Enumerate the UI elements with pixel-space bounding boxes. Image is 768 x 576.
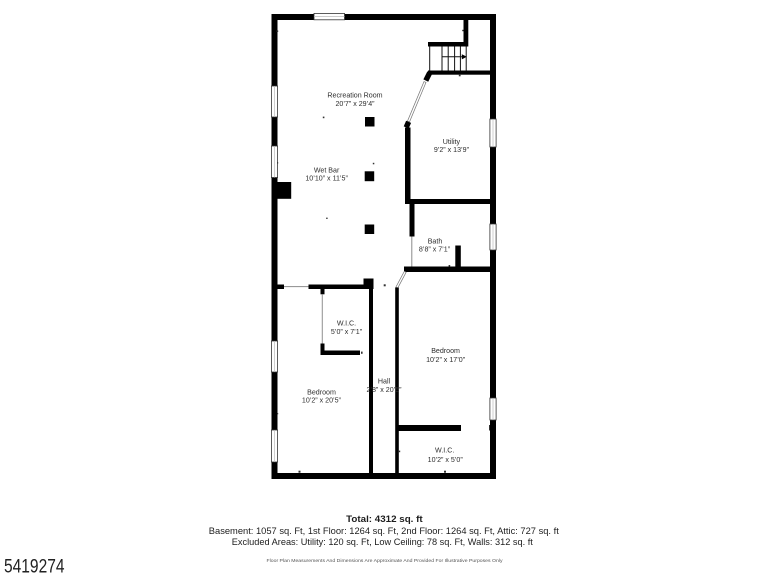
svg-text:5’0” x 7’1”: 5’0” x 7’1” bbox=[331, 328, 363, 336]
svg-text:Basement: 1057 sq. Ft, 1st Flo: Basement: 1057 sq. Ft, 1st Floor: 1264 s… bbox=[209, 525, 559, 536]
svg-text:20’7” x 29’4”: 20’7” x 29’4” bbox=[335, 100, 375, 108]
svg-text:Bath: Bath bbox=[428, 237, 443, 245]
svg-text:Excluded Areas: Utility: 120 s: Excluded Areas: Utility: 120 sq. Ft, Low… bbox=[232, 536, 533, 547]
svg-text:2’8” x 20’5”: 2’8” x 20’5” bbox=[366, 386, 402, 394]
svg-text:Recreation Room: Recreation Room bbox=[327, 92, 382, 100]
svg-text:Floor Plan Measurements And Di: Floor Plan Measurements And Dimensions A… bbox=[267, 558, 504, 564]
svg-text:8’8” x 7’1”: 8’8” x 7’1” bbox=[419, 246, 451, 254]
svg-text:10’2” x 17’0”: 10’2” x 17’0” bbox=[426, 356, 466, 364]
svg-text:10’2” x 5’0”: 10’2” x 5’0” bbox=[428, 456, 464, 464]
svg-text:Bedroom: Bedroom bbox=[431, 347, 460, 355]
svg-text:Utility: Utility bbox=[443, 138, 461, 146]
svg-text:W.I.C.: W.I.C. bbox=[435, 447, 454, 455]
svg-text:Bedroom: Bedroom bbox=[307, 388, 336, 396]
svg-text:Wet Bar: Wet Bar bbox=[314, 167, 340, 175]
svg-text:5419274: 5419274 bbox=[4, 556, 65, 576]
svg-text:Hall: Hall bbox=[378, 378, 391, 386]
svg-text:10’10” x 11’5”: 10’10” x 11’5” bbox=[305, 175, 348, 183]
svg-text:W.I.C.: W.I.C. bbox=[337, 320, 356, 328]
svg-text:Total: 4312 sq. ft: Total: 4312 sq. ft bbox=[346, 514, 423, 525]
svg-text:9’2” x 13’9”: 9’2” x 13’9” bbox=[434, 146, 470, 154]
svg-text:10’2” x 20’5”: 10’2” x 20’5” bbox=[302, 397, 342, 405]
